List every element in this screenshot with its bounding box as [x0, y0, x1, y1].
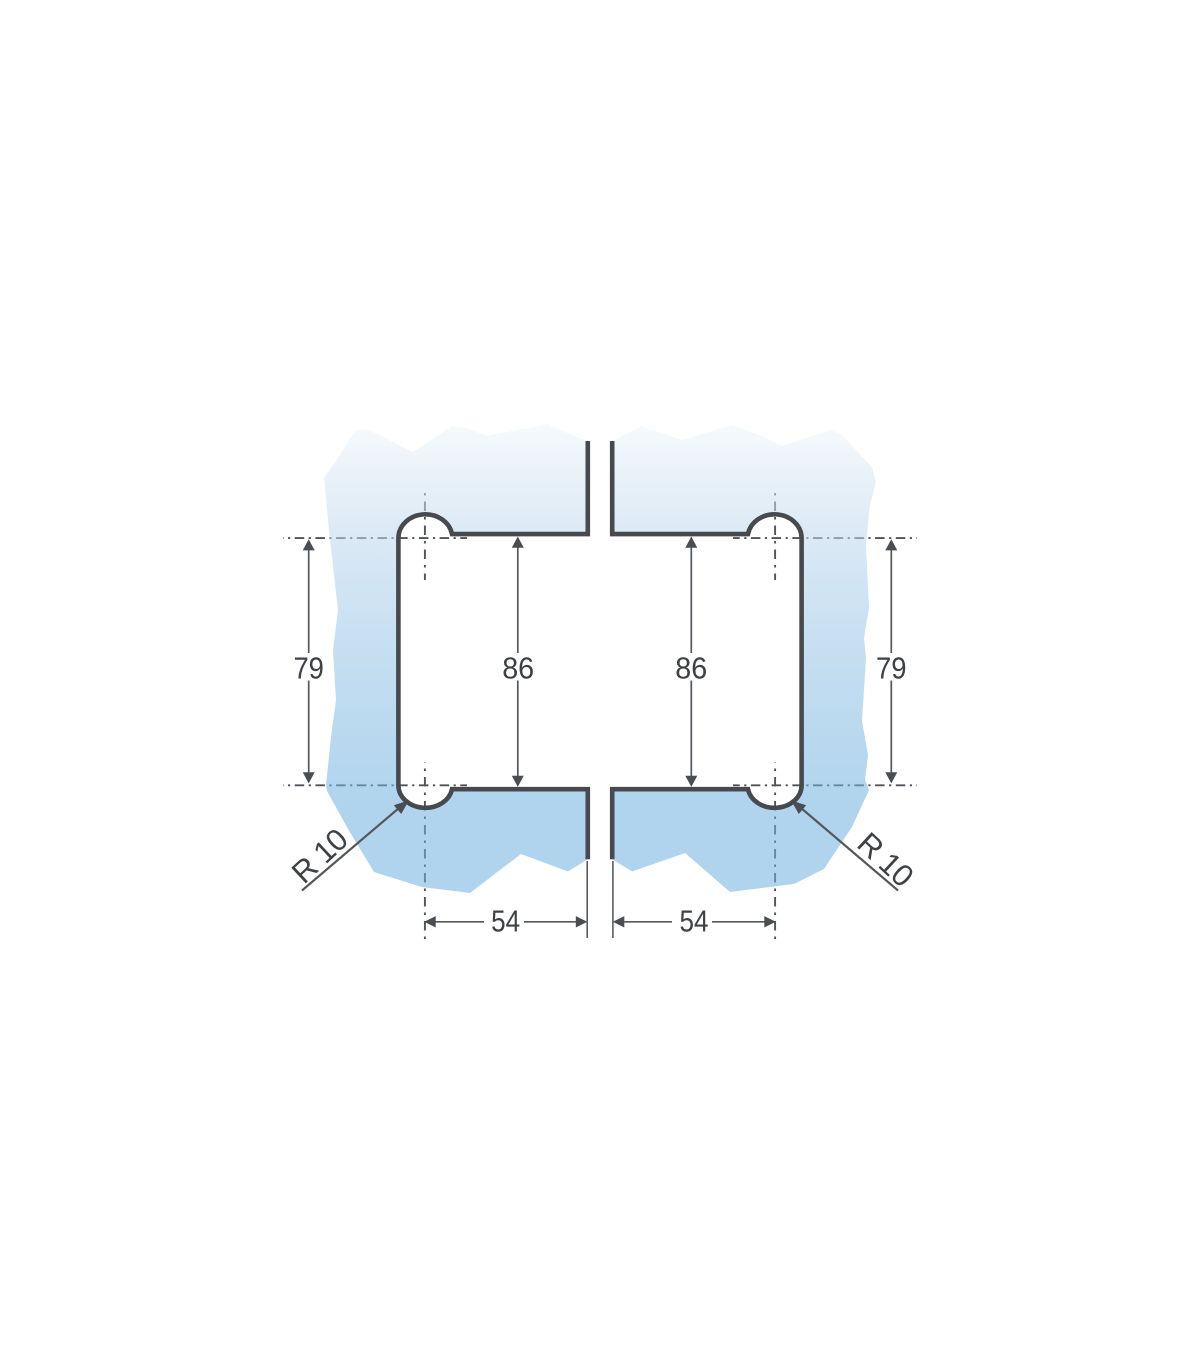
svg-text:86: 86: [675, 650, 707, 685]
svg-text:54: 54: [491, 904, 520, 939]
svg-text:79: 79: [876, 650, 907, 685]
svg-text:86: 86: [502, 650, 534, 685]
svg-text:54: 54: [680, 904, 709, 939]
svg-text:79: 79: [293, 650, 324, 685]
